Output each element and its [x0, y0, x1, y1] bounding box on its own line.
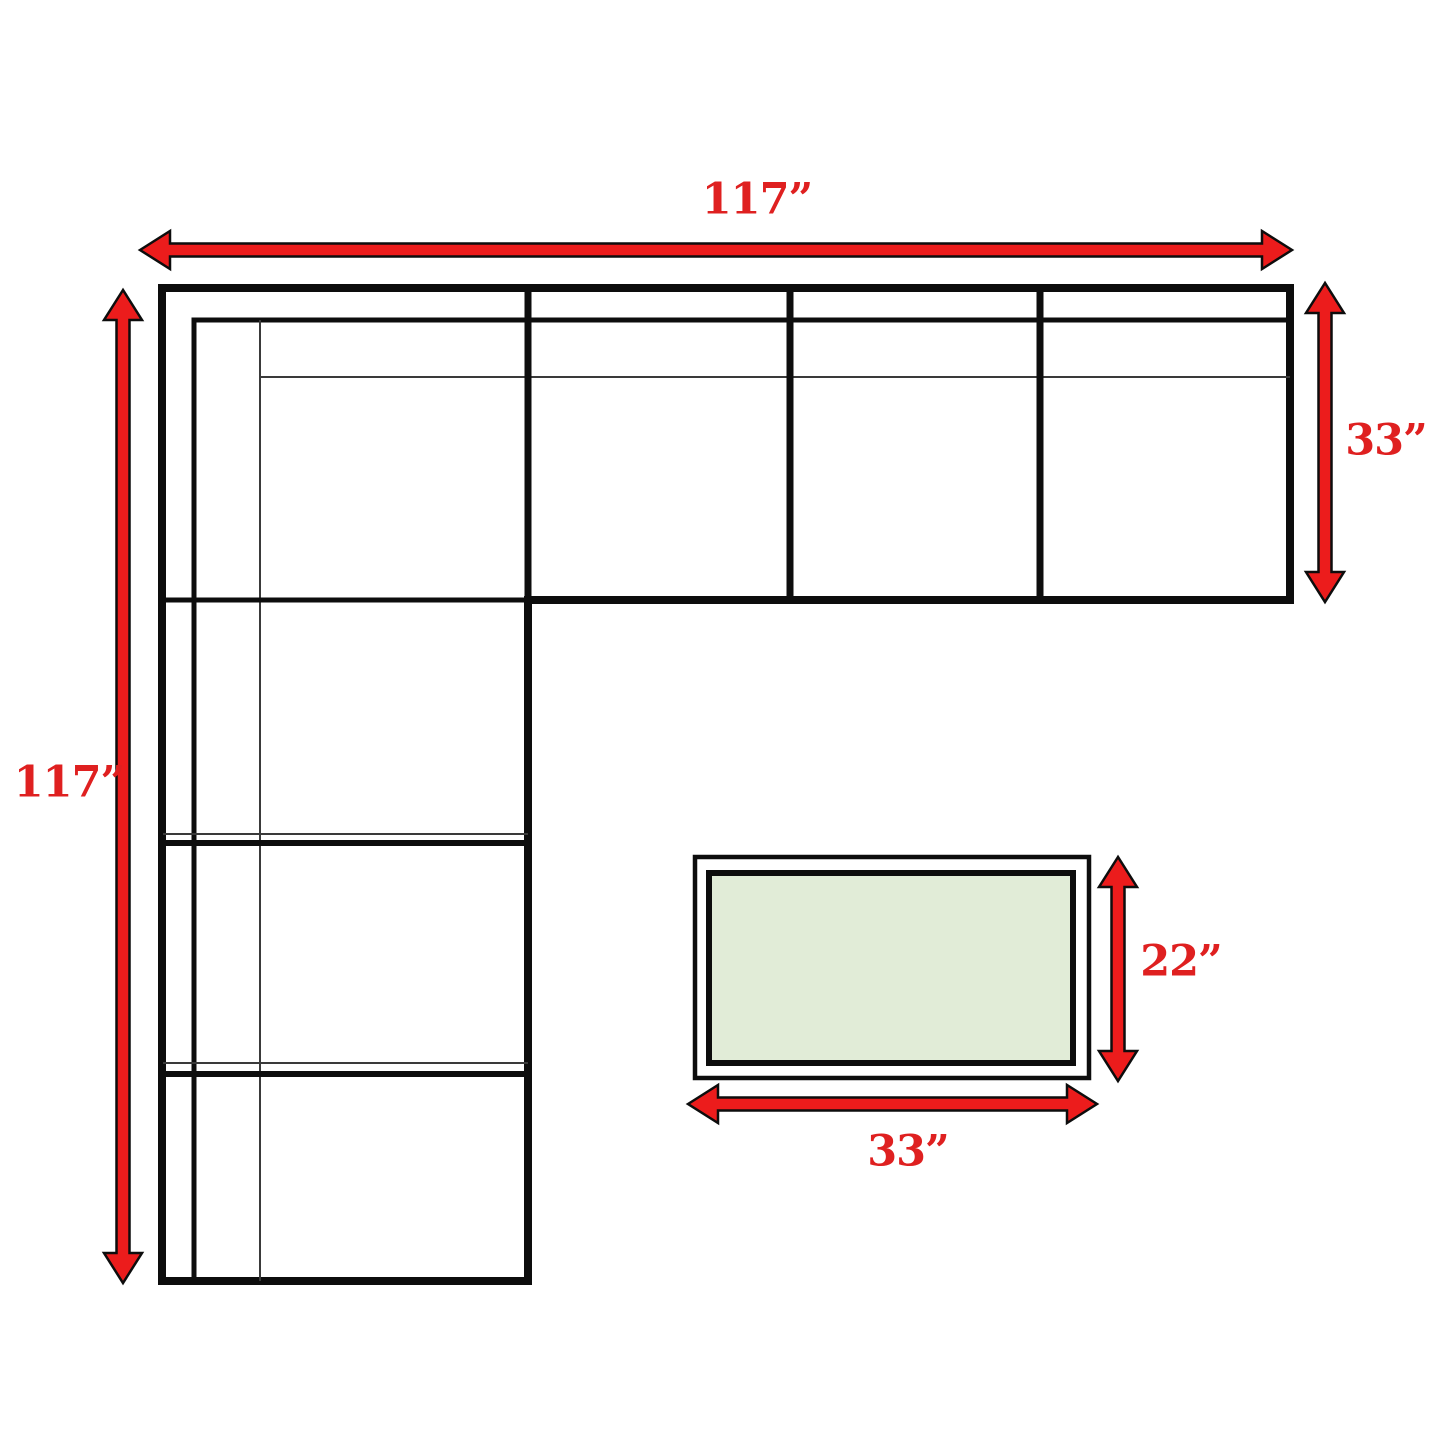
ottoman-cushion	[709, 873, 1073, 1063]
section-depth-arrow	[1306, 283, 1344, 602]
sofa-depth-label: 117”	[14, 762, 125, 805]
ottoman-depth-label: 22”	[1140, 941, 1222, 984]
sofa-width-arrow	[140, 231, 1292, 269]
ottoman-width-arrow	[688, 1085, 1097, 1123]
ottoman-width-label: 33”	[867, 1131, 949, 1174]
dimension-diagram: 117” 117” 33” 22” 33”	[0, 0, 1445, 1445]
sofa-width-label: 117”	[702, 179, 813, 222]
ottoman-depth-arrow	[1099, 857, 1137, 1081]
section-depth-label: 33”	[1345, 420, 1427, 463]
sofa-outline	[162, 288, 1290, 1281]
